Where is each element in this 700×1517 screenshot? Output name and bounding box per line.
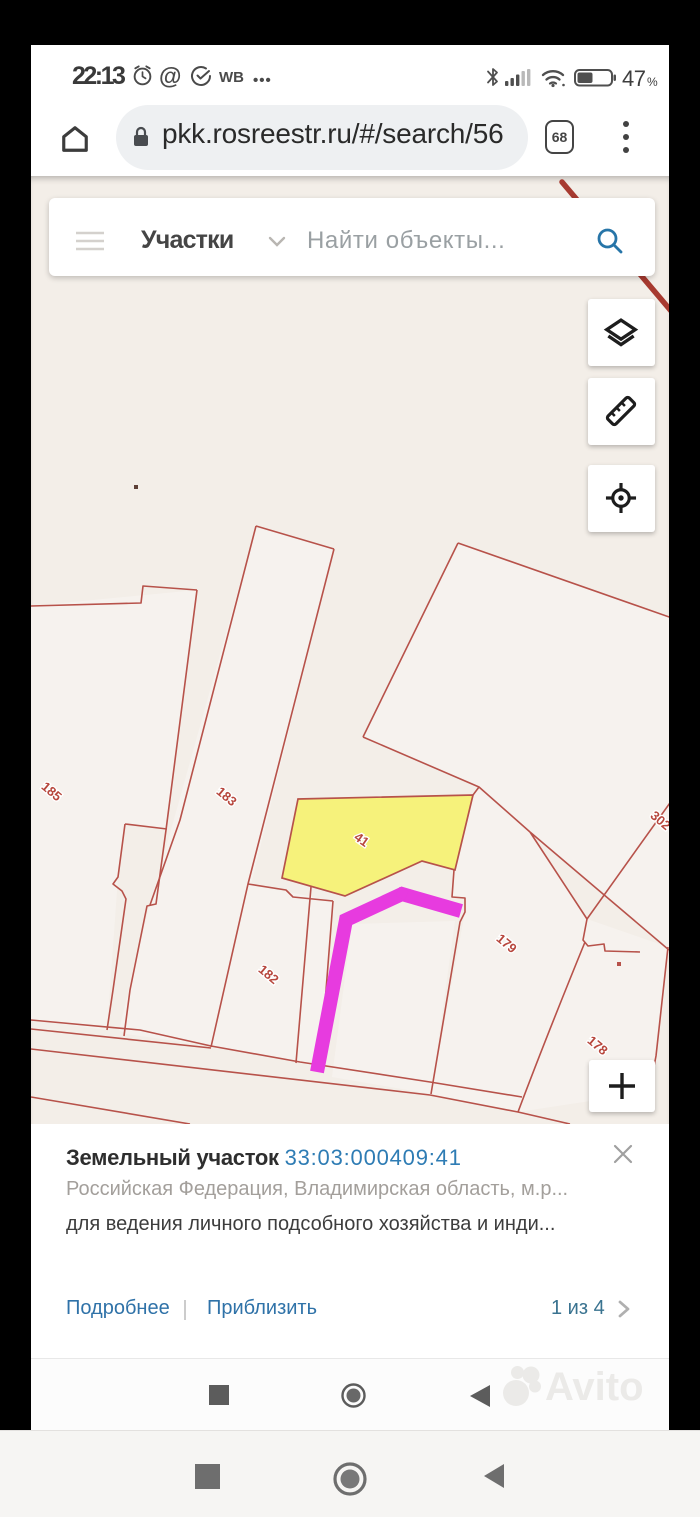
svg-text:Avito: Avito (545, 1365, 644, 1409)
